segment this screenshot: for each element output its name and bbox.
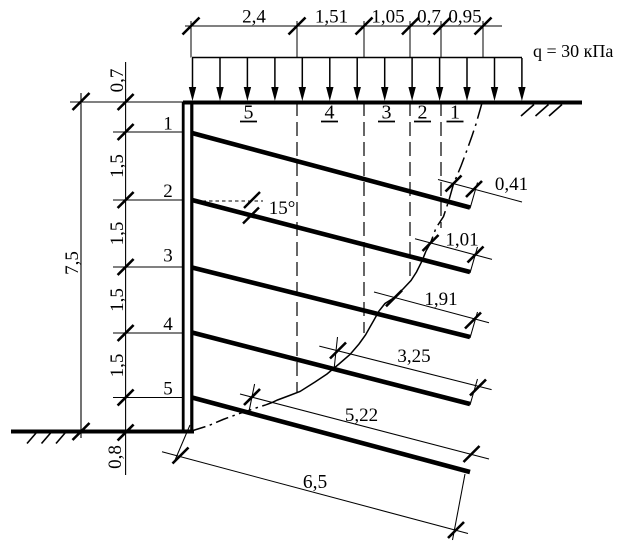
svg-text:3: 3 — [163, 246, 173, 267]
svg-text:1,5: 1,5 — [107, 154, 128, 178]
svg-text:6,5: 6,5 — [303, 472, 327, 493]
svg-text:7,5: 7,5 — [62, 251, 83, 275]
svg-text:4: 4 — [325, 102, 335, 124]
svg-text:0,7: 0,7 — [417, 7, 441, 28]
svg-text:q = 30 кПа: q = 30 кПа — [533, 41, 613, 61]
svg-text:2: 2 — [163, 181, 173, 202]
svg-text:5: 5 — [244, 102, 254, 124]
svg-text:2: 2 — [418, 102, 428, 124]
svg-text:1,05: 1,05 — [371, 7, 404, 28]
svg-text:5: 5 — [163, 379, 173, 400]
svg-text:1,91: 1,91 — [424, 289, 457, 310]
svg-text:1: 1 — [450, 102, 460, 124]
svg-text:0,41: 0,41 — [495, 174, 528, 195]
svg-text:2,4: 2,4 — [242, 7, 266, 28]
svg-text:1,5: 1,5 — [107, 288, 128, 312]
svg-text:3: 3 — [382, 102, 392, 124]
svg-text:0,8: 0,8 — [105, 445, 126, 469]
svg-text:15°: 15° — [269, 198, 296, 219]
svg-text:1: 1 — [163, 114, 173, 135]
svg-text:0,95: 0,95 — [448, 7, 481, 28]
svg-text:5,22: 5,22 — [345, 405, 378, 426]
svg-text:1,5: 1,5 — [107, 354, 128, 378]
svg-text:1,01: 1,01 — [445, 230, 478, 251]
svg-text:4: 4 — [163, 314, 173, 335]
svg-text:1,5: 1,5 — [107, 222, 128, 246]
svg-text:1,51: 1,51 — [315, 7, 348, 28]
svg-text:0,7: 0,7 — [107, 69, 128, 93]
svg-text:3,25: 3,25 — [397, 346, 430, 367]
